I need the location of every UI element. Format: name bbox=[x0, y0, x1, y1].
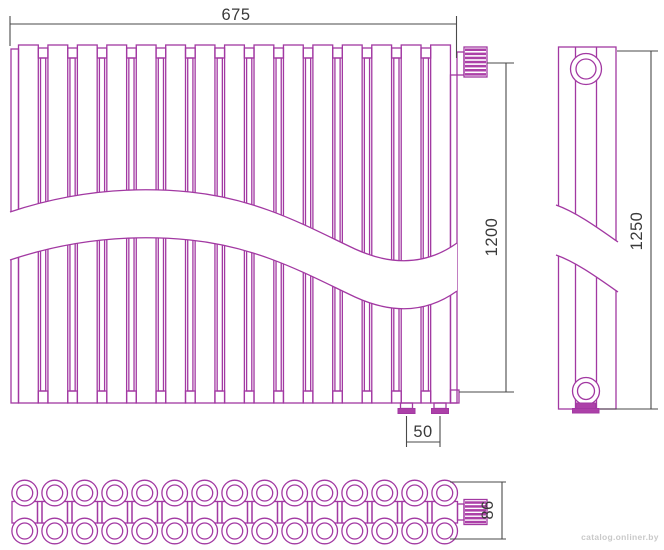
width-dimension-label: 675 bbox=[221, 6, 250, 24]
side-view bbox=[556, 47, 618, 413]
technical-drawing: 675 1200 1250 50 86 catalog.onliner.by bbox=[0, 0, 664, 550]
depth-dimension-label: 86 bbox=[479, 500, 497, 519]
connection-pitch-dimension-label: 50 bbox=[413, 423, 432, 441]
bottom-view bbox=[12, 480, 487, 544]
height-dimension-label: 1200 bbox=[483, 218, 501, 257]
front-view bbox=[10, 45, 487, 414]
drawing-canvas: 675 1200 1250 50 86 catalog.onliner.by bbox=[0, 0, 664, 550]
watermark-text: catalog.onliner.by bbox=[581, 532, 659, 542]
overall-height-dimension-label: 1250 bbox=[628, 212, 646, 251]
